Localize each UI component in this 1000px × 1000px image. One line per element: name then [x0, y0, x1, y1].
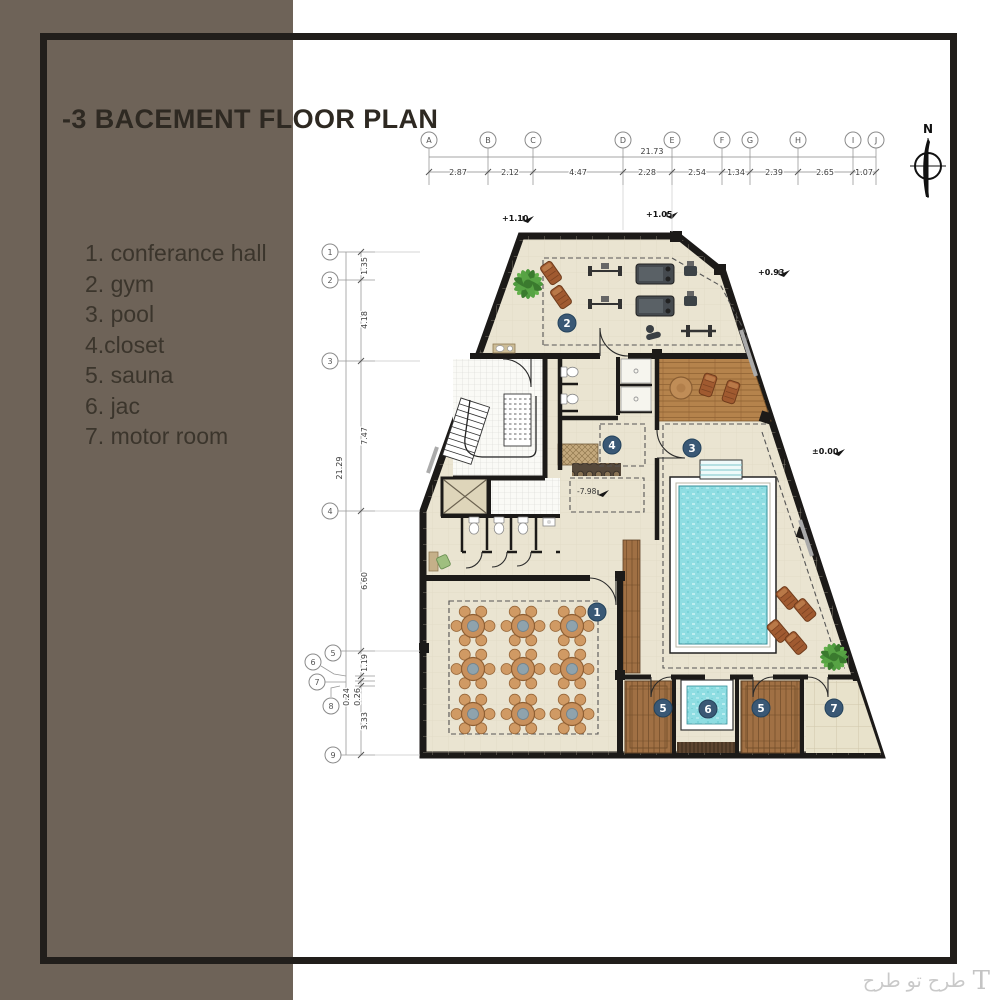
legend-item: 1. conferance hall: [85, 238, 267, 269]
watermark: T طرح تو طرح: [863, 968, 990, 994]
legend-item: 7. motor room: [85, 421, 267, 452]
legend-item: 6. jac: [85, 391, 267, 422]
legend-item: 4.closet: [85, 330, 267, 361]
legend-item: 5. sauna: [85, 360, 267, 391]
legend-item: 2. gym: [85, 269, 267, 300]
border-frame: [40, 33, 957, 964]
legend-item: 3. pool: [85, 299, 267, 330]
watermark-text: طرح تو طرح: [863, 970, 966, 992]
legend: 1. conferance hall 2. gym 3. pool 4.clos…: [85, 238, 267, 452]
page-title: -3 BACEMENT FLOOR PLAN: [62, 104, 438, 135]
watermark-logo: T: [973, 968, 990, 994]
page: 1 2 3 4 5 6 5: [0, 0, 1000, 1000]
